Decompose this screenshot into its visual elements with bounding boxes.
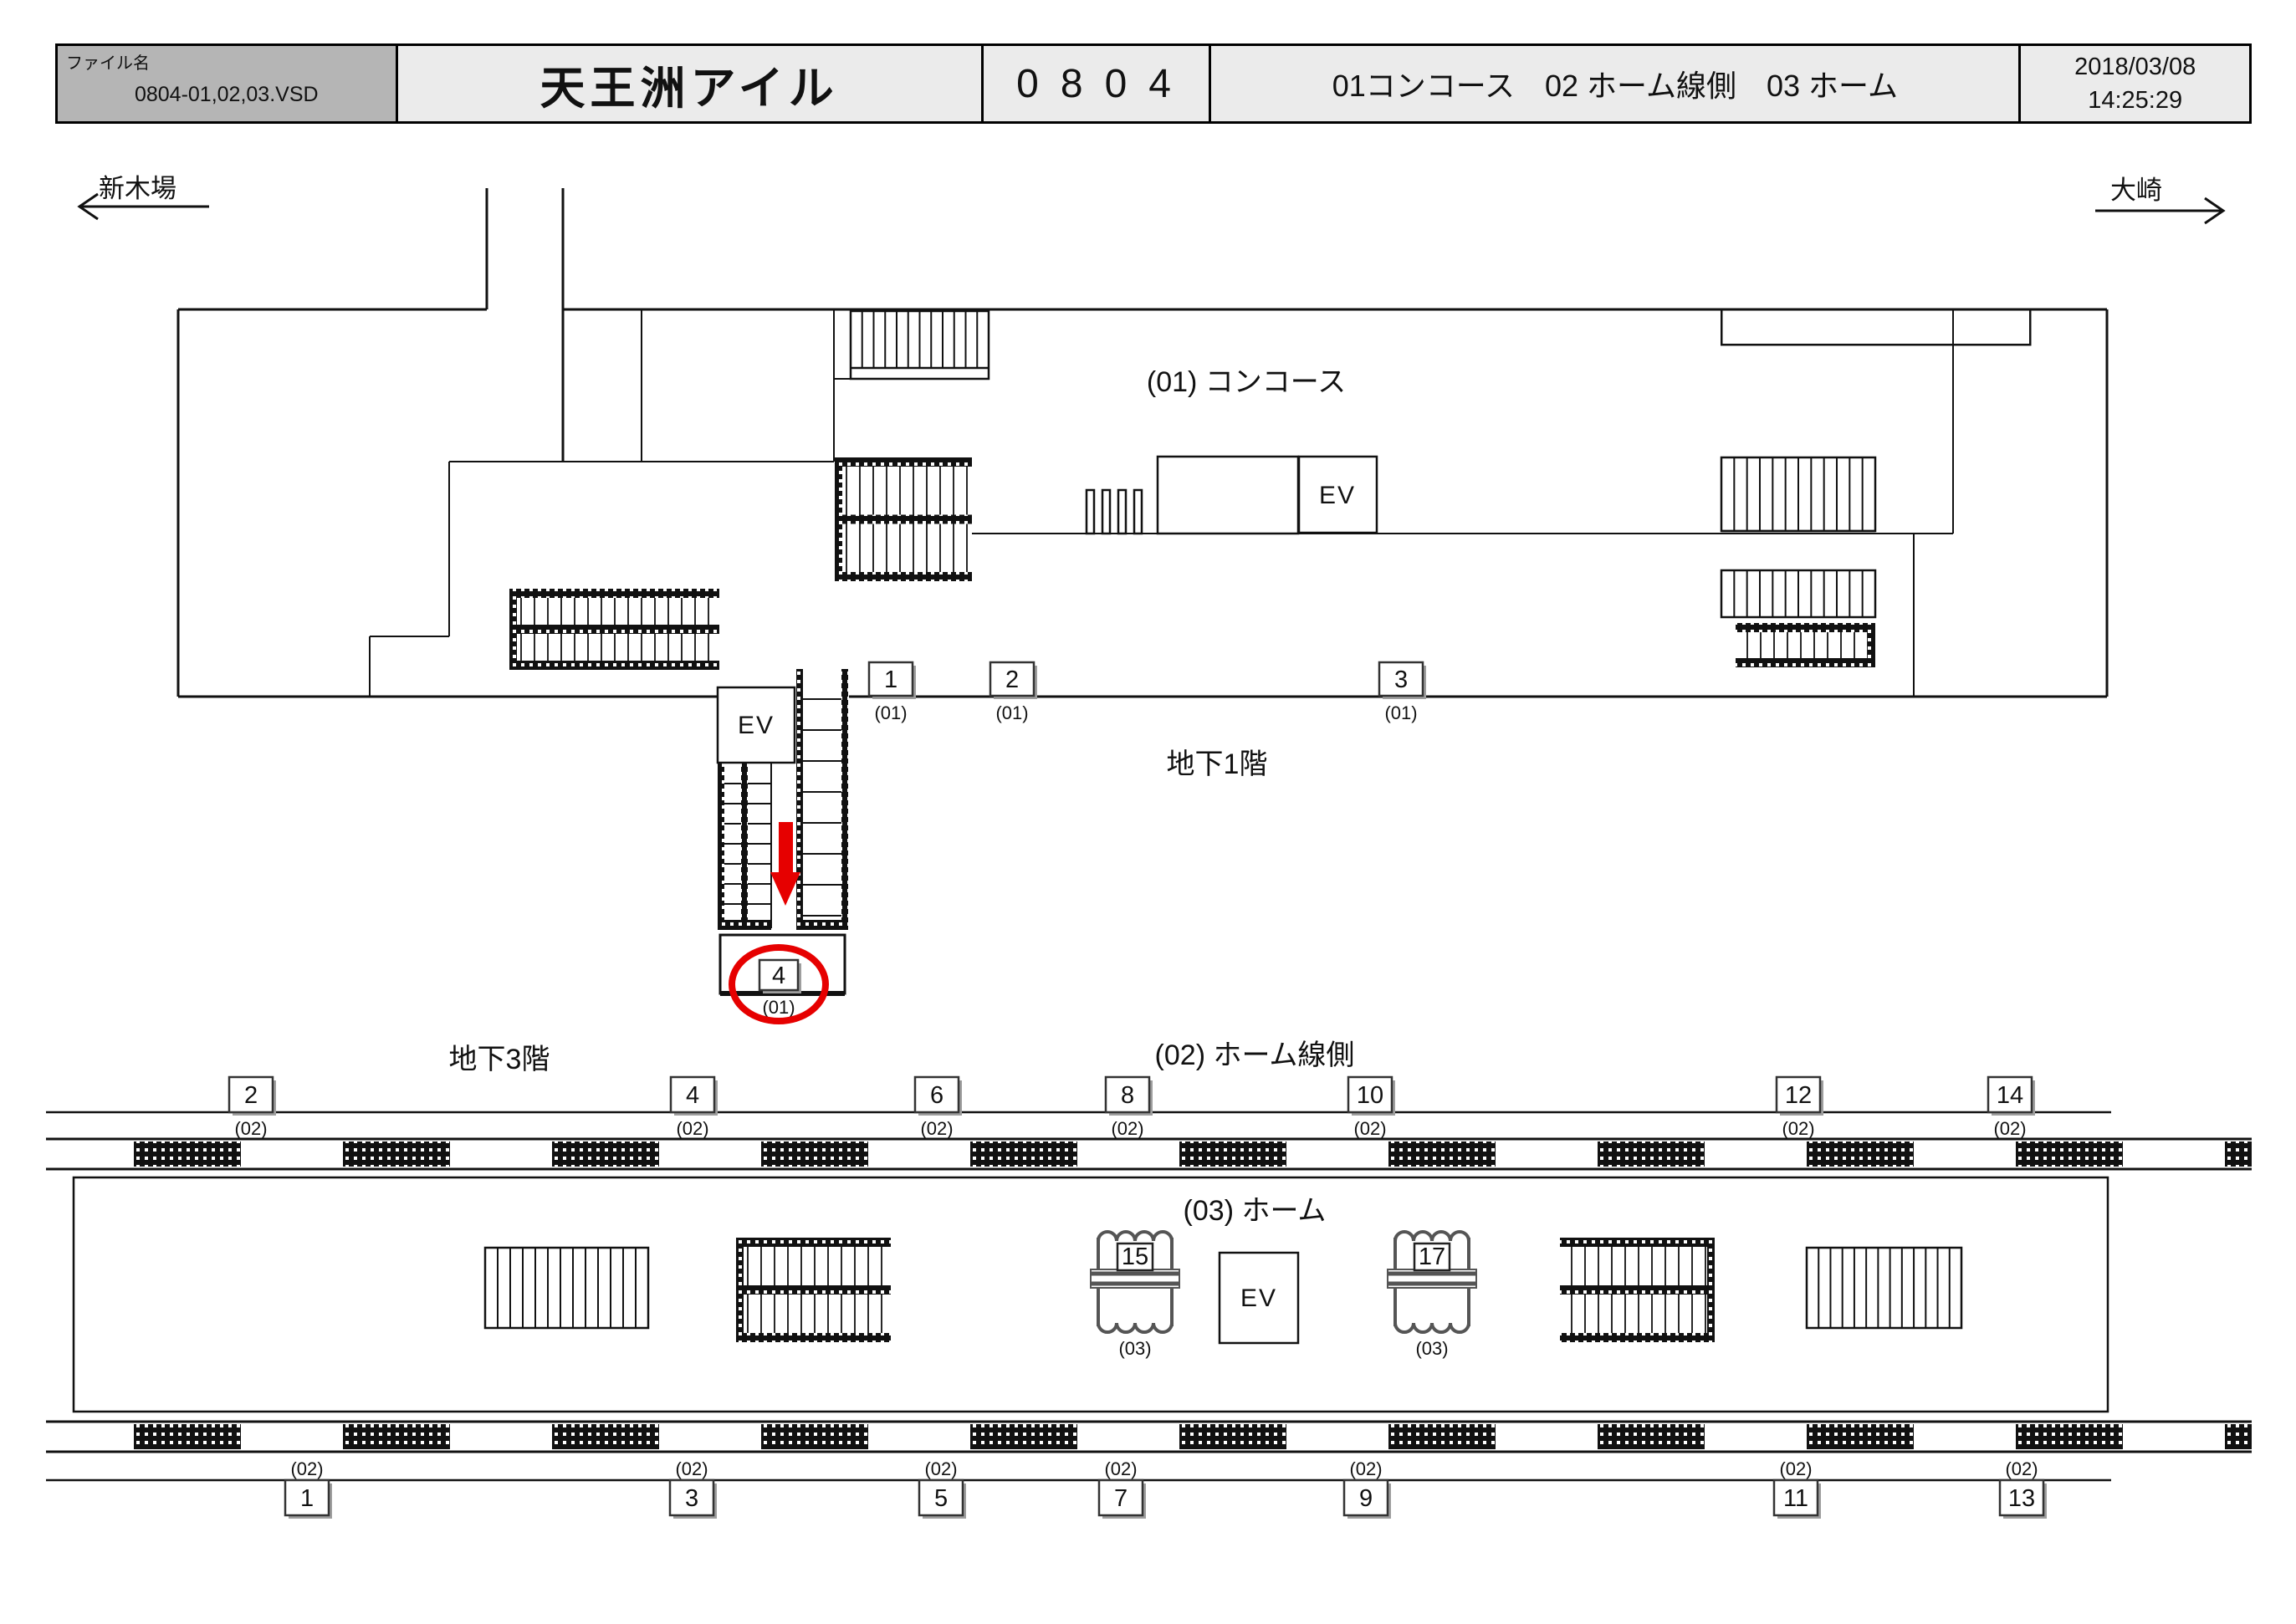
- svg-text:(01): (01): [874, 702, 907, 723]
- ad-marker-02-11: (02) 11: [1774, 1458, 1821, 1519]
- svg-text:7: 7: [1114, 1485, 1128, 1512]
- direction-left-label: 新木場: [99, 174, 176, 203]
- svg-text:(02): (02): [1782, 1118, 1814, 1139]
- svg-text:(02): (02): [920, 1118, 953, 1139]
- direction-shinkiba: 新木場: [79, 174, 209, 219]
- svg-text:(01): (01): [762, 997, 795, 1018]
- elevator-corridor: EV: [718, 687, 795, 763]
- ev-label: EV: [1240, 1284, 1277, 1312]
- svg-text:(02): (02): [1104, 1458, 1137, 1479]
- svg-text:(02): (02): [1111, 1118, 1143, 1139]
- ad-marker-02-5: (02) 5: [919, 1458, 966, 1519]
- direction-osaki: 大崎: [2095, 176, 2223, 223]
- svg-text:(01): (01): [995, 702, 1028, 723]
- svg-text:(02): (02): [2005, 1458, 2038, 1479]
- svg-text:9: 9: [1359, 1485, 1373, 1512]
- b1-floor-label: 地下1階: [1167, 748, 1268, 780]
- svg-text:5: 5: [934, 1485, 948, 1512]
- ad-marker-02-7: (02) 7: [1099, 1458, 1146, 1519]
- pillar-marker-03-17: 17 (03): [1388, 1232, 1476, 1359]
- svg-text:3: 3: [1394, 666, 1408, 693]
- b3-floor-label: 地下3階: [449, 1044, 550, 1075]
- station-map-page: ファイル名 0804-01,02,03.VSD 天王洲アイル 0804 01コン…: [0, 0, 2296, 1624]
- platform-outline: [74, 1177, 2108, 1412]
- ad-marker-02-2: 2 (02): [229, 1077, 276, 1139]
- svg-text:2: 2: [1005, 666, 1019, 693]
- svg-text:3: 3: [685, 1485, 698, 1512]
- down-arrow: [779, 822, 793, 874]
- station-office-box: [1158, 457, 1298, 534]
- elevator-concourse-center: EV: [1299, 457, 1377, 533]
- concourse-outline: [178, 188, 2107, 697]
- svg-text:14: 14: [1997, 1082, 2023, 1109]
- track-upper-markers: 2 (02) 4 (02) 6 (02) 8 (02): [229, 1077, 2035, 1139]
- svg-text:1: 1: [300, 1485, 314, 1512]
- ad-marker-02-12: 12 (02): [1777, 1077, 1823, 1139]
- svg-text:10: 10: [1357, 1082, 1383, 1109]
- svg-text:(02): (02): [676, 1118, 708, 1139]
- station-floor-plan: 新木場 大崎: [0, 0, 2296, 1624]
- ad-marker-01-2: 2 (01): [990, 662, 1037, 723]
- svg-text:8: 8: [1121, 1082, 1134, 1109]
- ad-marker-02-14: 14 (02): [1988, 1077, 2035, 1139]
- svg-text:(02): (02): [1779, 1458, 1812, 1479]
- svg-text:(02): (02): [1353, 1118, 1386, 1139]
- direction-right-label: 大崎: [2110, 176, 2162, 205]
- svg-text:2: 2: [244, 1082, 258, 1109]
- ev-label: EV: [1319, 482, 1356, 509]
- svg-text:15: 15: [1122, 1244, 1148, 1270]
- svg-text:(02): (02): [290, 1458, 323, 1479]
- track-side-label: (02) ホーム線側: [1155, 1039, 1355, 1071]
- ad-marker-02-8: 8 (02): [1106, 1077, 1153, 1139]
- svg-text:17: 17: [1419, 1244, 1445, 1270]
- down-arrow-head: [770, 872, 800, 906]
- ad-marker-02-9: (02) 9: [1344, 1458, 1391, 1519]
- svg-text:6: 6: [930, 1082, 943, 1109]
- ev-label: EV: [738, 712, 775, 739]
- ad-marker-01-1: 1 (01): [869, 662, 916, 723]
- elevator-platform: EV: [1220, 1253, 1298, 1343]
- svg-text:(02): (02): [1993, 1118, 2026, 1139]
- svg-text:(03): (03): [1118, 1338, 1151, 1359]
- pillar-marker-03-15: 15 (03): [1091, 1232, 1179, 1359]
- svg-text:11: 11: [1783, 1485, 1808, 1512]
- svg-text:4: 4: [772, 963, 785, 989]
- ad-marker-02-4: 4 (02): [671, 1077, 718, 1139]
- svg-text:(01): (01): [1384, 702, 1417, 723]
- top-right-room: [1721, 309, 2030, 345]
- ad-marker-02-3: (02) 3: [670, 1458, 717, 1519]
- svg-text:(02): (02): [675, 1458, 708, 1479]
- platform-label: (03) ホーム: [1184, 1195, 1327, 1227]
- svg-text:(02): (02): [924, 1458, 957, 1479]
- svg-text:4: 4: [686, 1082, 699, 1109]
- svg-text:13: 13: [2008, 1485, 2035, 1512]
- svg-text:(03): (03): [1415, 1338, 1448, 1359]
- ad-marker-02-10: 10 (02): [1348, 1077, 1395, 1139]
- svg-text:1: 1: [884, 666, 897, 693]
- concourse-label: (01) コンコース: [1147, 366, 1346, 398]
- ad-marker-01-3: 3 (01): [1379, 662, 1426, 723]
- svg-text:(02): (02): [1349, 1458, 1382, 1479]
- ad-marker-02-13: (02) 13: [2000, 1458, 2047, 1519]
- track-lower-markers: (02) 1 (02) 3 (02) 5 (02) 7: [285, 1458, 2047, 1519]
- svg-text:12: 12: [1785, 1082, 1812, 1109]
- svg-text:(02): (02): [234, 1118, 267, 1139]
- ad-marker-02-6: 6 (02): [915, 1077, 962, 1139]
- ad-marker-02-1: (02) 1: [285, 1458, 332, 1519]
